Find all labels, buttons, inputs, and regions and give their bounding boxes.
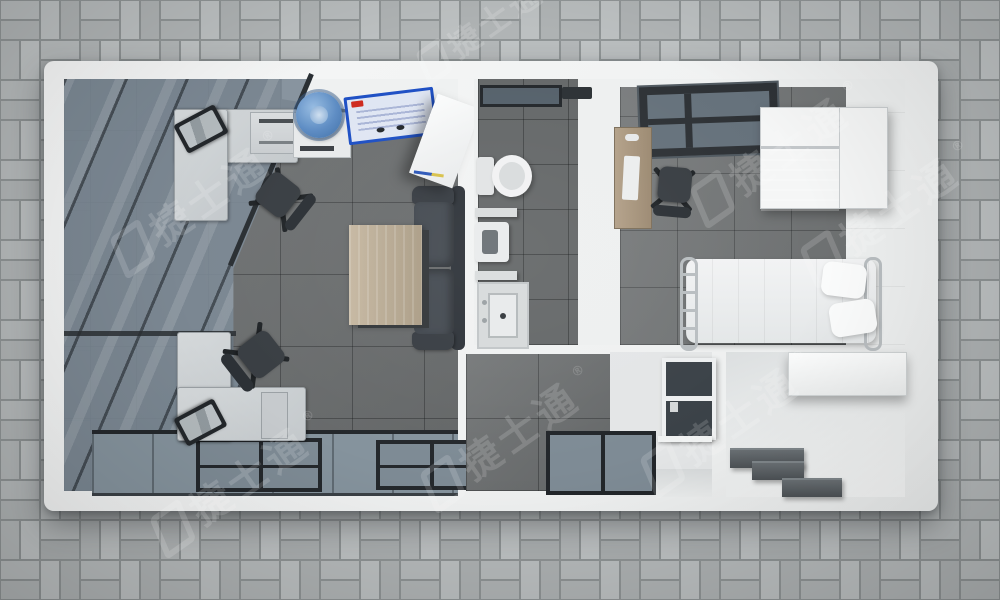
coffee-table bbox=[349, 225, 422, 325]
bathroom-vent bbox=[562, 87, 592, 99]
room-kitchen bbox=[726, 352, 905, 497]
wall-shelf bbox=[475, 208, 517, 217]
office-chair bbox=[645, 158, 702, 220]
scene-floor-plan: 捷士通® 捷士通® 捷士通® 捷士通® 捷士通® 捷士通® 捷士通® bbox=[0, 0, 1000, 600]
container-house bbox=[44, 61, 938, 511]
room-bedroom bbox=[610, 79, 905, 345]
chair-seat bbox=[657, 166, 692, 203]
wall-shelf bbox=[475, 271, 517, 280]
bed-footboard bbox=[680, 257, 698, 351]
urinal bbox=[475, 222, 509, 262]
window-sill bbox=[658, 436, 712, 442]
vanity-sink bbox=[477, 282, 529, 349]
room-bathroom bbox=[474, 79, 610, 345]
hall-window bbox=[546, 431, 656, 495]
toilet bbox=[492, 155, 532, 197]
wardrobe-cabinet bbox=[760, 107, 888, 209]
overhead-cabinet bbox=[788, 352, 907, 396]
interior-window bbox=[662, 358, 716, 440]
sofa-armrest bbox=[412, 332, 454, 350]
desk-pedestal bbox=[261, 392, 288, 439]
water-bottle bbox=[296, 92, 342, 138]
window-unit bbox=[196, 438, 322, 492]
skylight bbox=[639, 83, 779, 158]
room-office bbox=[64, 79, 458, 491]
pillow bbox=[820, 260, 868, 299]
pillow bbox=[828, 298, 879, 339]
single-bed bbox=[680, 257, 882, 345]
counter-slab bbox=[782, 478, 842, 497]
bathroom-window bbox=[480, 85, 562, 107]
